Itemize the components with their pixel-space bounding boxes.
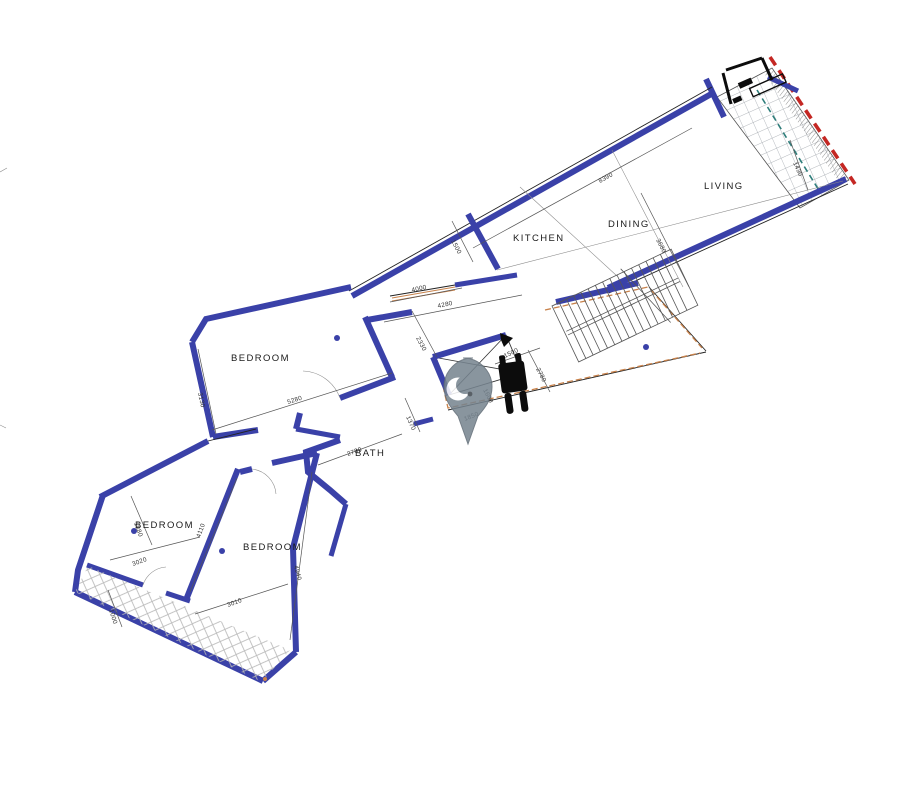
wall-corridor-north [367,312,412,320]
room-label-dining: DINING [608,219,650,230]
bedroom1-walls [192,287,412,437]
room-label-bedroom3: BEDROOM [243,542,302,553]
divider-kitchen-dining [520,187,617,276]
room-label-bedroom1: BEDROOM [231,353,290,364]
marker-dot [643,344,649,350]
floor-plan-drawing: 8390 3680 1430 1500 4000 4280 2330 3130 … [0,0,924,800]
marker-dot [219,548,225,554]
wall-kitchen-south [455,275,517,285]
floor-plan-page: 8390 3680 1430 1500 4000 4280 2330 3130 … [0,0,924,800]
edge-marks [0,168,7,428]
dim-label: 4280 [437,300,454,310]
door-swing-bedroom2 [143,567,166,585]
room-label-living: LIVING [704,181,744,192]
wheelchair-icon [497,352,531,414]
room-label-bath: BATH [355,448,385,459]
marker-dot-orange [263,677,267,681]
dim-label: 3020 [131,556,148,568]
door-swing-bedroom3 [252,469,276,494]
dim-label: 8390 [598,171,615,185]
dim-label: 4110 [195,522,207,538]
wall-bedroom-divider [186,469,238,600]
location-pin-icon [444,358,492,444]
dim-label: 5280 [287,395,304,406]
bath-walls [296,419,433,556]
dim-label: 2780 [534,367,547,384]
door-swing-bedroom1 [303,371,340,398]
room-label-kitchen: KITCHEN [513,233,565,244]
dim-label: 1370 [404,415,417,432]
wall-southeast [608,179,846,288]
marker-dot [334,335,340,341]
dim-label: 1500 [449,239,462,256]
dim-label: 3010 [226,597,243,609]
dim-label: 2330 [414,336,427,353]
room-label-bedroom2: BEDROOM [135,520,194,531]
patio-hatch [75,566,290,682]
